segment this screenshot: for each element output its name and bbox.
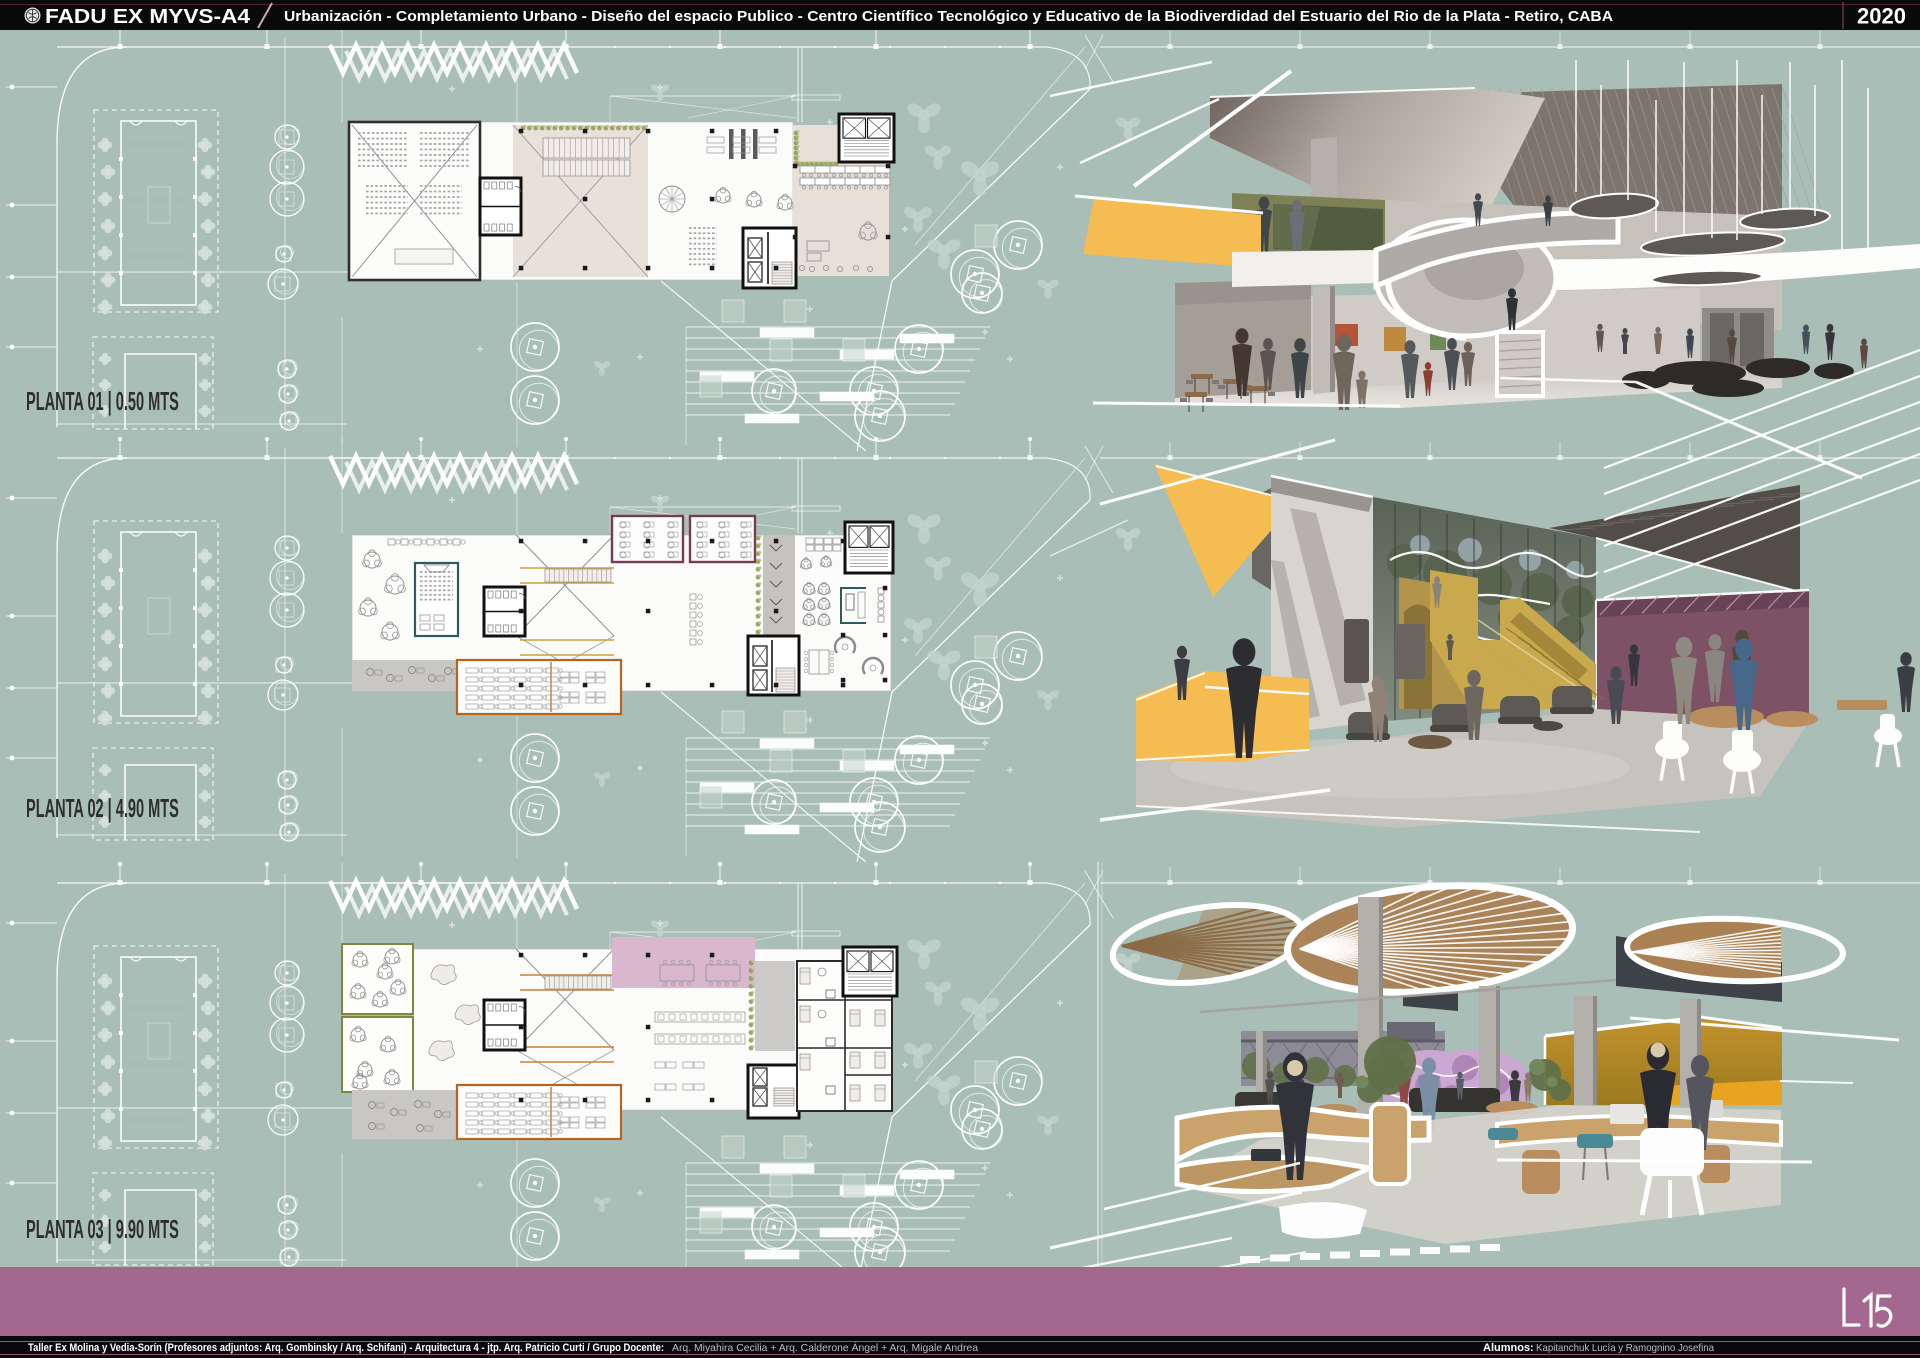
svg-text:Taller Ex Molina y Vedia-Sorín: Taller Ex Molina y Vedia-Sorín (Profesor… — [28, 1342, 664, 1354]
svg-text:Urbanización - Completamiento: Urbanización - Completamiento Urbano - D… — [284, 9, 1614, 25]
svg-text:Alumnos:: Alumnos: — [1483, 1342, 1534, 1354]
svg-text:PLANTA 03 | 9.90 MTS: PLANTA 03 | 9.90 MTS — [26, 1216, 179, 1244]
svg-text:Arq. Miyahira Cecilia + Ar: Arq. Miyahira Cecilia + Arq. Calderone Á… — [672, 1341, 978, 1354]
svg-text:Kapitanchuk Lucía y Ramogni: Kapitanchuk Lucía y Ramognino Josefina — [1536, 1342, 1714, 1354]
svg-text:PLANTA 01 | 0.50 MTS: PLANTA 01 | 0.50 MTS — [26, 388, 179, 416]
svg-text:PLANTA 02 | 4.90 MTS: PLANTA 02 | 4.90 MTS — [26, 795, 179, 823]
svg-text:2020: 2020 — [1857, 4, 1906, 29]
svg-text:FADU EX MYVS-A4: FADU EX MYVS-A4 — [45, 6, 251, 28]
